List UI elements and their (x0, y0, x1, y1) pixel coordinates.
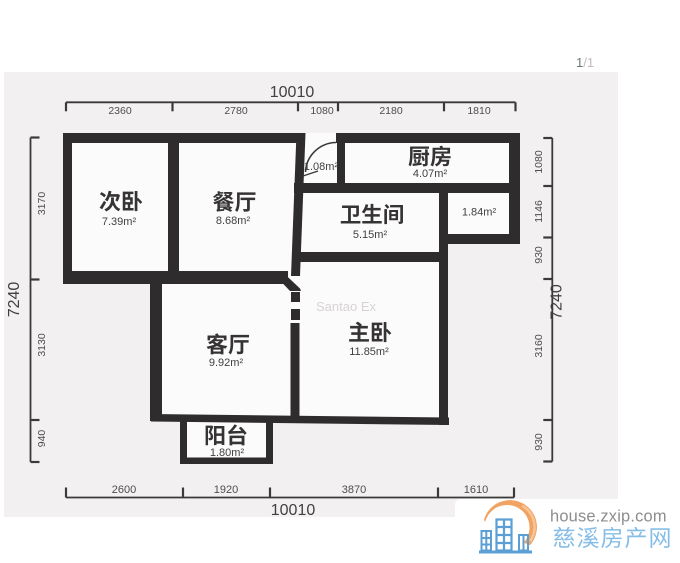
svg-text:8.68m²: 8.68m² (216, 215, 251, 227)
svg-text:7.39m²: 7.39m² (102, 216, 137, 228)
svg-text:2360: 2360 (108, 105, 132, 117)
svg-text:9.92m²: 9.92m² (209, 357, 244, 369)
svg-text:Santao Ex: Santao Ex (316, 299, 376, 314)
svg-text:5.15m²: 5.15m² (353, 229, 388, 241)
svg-text:7240: 7240 (549, 284, 566, 320)
svg-text:1.08m²: 1.08m² (304, 161, 339, 173)
svg-text:4.07m²: 4.07m² (413, 168, 448, 180)
svg-text:3130: 3130 (36, 333, 48, 357)
svg-text:3870: 3870 (342, 484, 366, 496)
svg-text:2180: 2180 (379, 105, 403, 117)
svg-text:1080: 1080 (310, 105, 334, 117)
svg-text:house.zxip.com: house.zxip.com (550, 508, 667, 526)
svg-text:7240: 7240 (6, 282, 23, 318)
svg-text:1080: 1080 (533, 150, 545, 174)
svg-text:3160: 3160 (533, 334, 545, 358)
svg-text:3170: 3170 (36, 192, 48, 216)
svg-text:2780: 2780 (224, 105, 248, 117)
svg-text:1146: 1146 (533, 200, 545, 223)
svg-text:1.84m²: 1.84m² (462, 207, 497, 219)
svg-text:1610: 1610 (464, 484, 488, 496)
svg-text:1810: 1810 (467, 105, 491, 117)
svg-text:10010: 10010 (271, 502, 316, 519)
svg-text:11.85m²: 11.85m² (349, 346, 389, 358)
svg-text:1/1: 1/1 (576, 55, 594, 70)
svg-text:10010: 10010 (270, 84, 315, 101)
svg-text:930: 930 (533, 246, 545, 264)
svg-text:930: 930 (533, 433, 545, 451)
svg-text:1.80m²: 1.80m² (210, 447, 245, 459)
svg-text:2600: 2600 (112, 484, 136, 496)
svg-text:940: 940 (36, 430, 48, 448)
svg-text:1920: 1920 (214, 484, 238, 496)
